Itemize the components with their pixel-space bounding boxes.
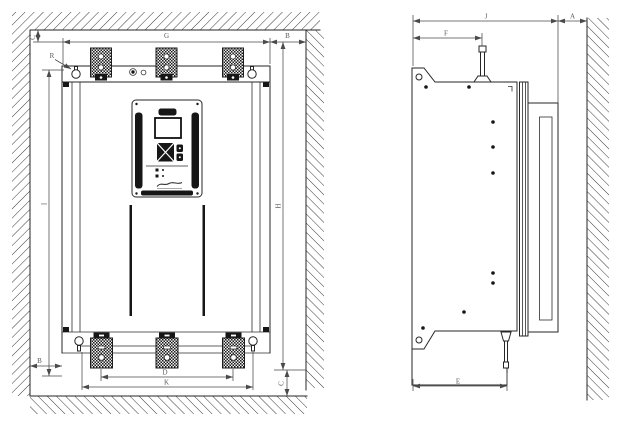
keypad-screw [135, 192, 137, 194]
status-led [162, 175, 164, 177]
keypad-screw [196, 103, 198, 105]
side-mounting-hole [416, 74, 422, 80]
dim-label-bottom-clearance: C [278, 381, 286, 386]
dim-label-front-clearance: A [570, 13, 575, 21]
dim-label-top-clearance: C [29, 35, 37, 40]
dim-label-top-depth: F [444, 30, 448, 38]
corner-nub [63, 82, 69, 87]
dim-label-overall-depth: J [485, 13, 488, 21]
wall-hatch-right [306, 30, 324, 388]
dim-label-terminal-pitch-inner: D [162, 369, 167, 377]
status-led [156, 175, 159, 178]
wall-hatch-left [12, 12, 30, 396]
corner-nub [263, 327, 269, 332]
dim-label-overall-height: H [275, 203, 283, 208]
keypad-side-rail [192, 113, 200, 189]
terminal-block-top [223, 48, 244, 81]
keypad-top-bar [159, 109, 177, 116]
terminal-block-top [156, 48, 177, 81]
terminal-block-bottom [156, 333, 178, 369]
dim-label-left-clearance: B [37, 357, 42, 365]
dim-label-mounting-width: G [164, 32, 169, 40]
wall-hatch-side [587, 18, 609, 400]
keypad-side-rail [135, 113, 143, 189]
terminal-block-top [91, 48, 112, 81]
keypad-bottom-bar [141, 191, 193, 196]
terminal-block-bottom [223, 333, 245, 369]
dim-label-mounting-slot: R [50, 52, 55, 60]
dim-label-terminal-pitch-outer: K [164, 379, 169, 387]
status-led [156, 169, 159, 172]
corner-nub [263, 82, 269, 87]
dim-label-base-depth: E [456, 378, 460, 386]
vent-slot [130, 205, 133, 316]
keypad-screw [196, 192, 198, 194]
corner-nub [63, 327, 69, 332]
side-wall-hatching [587, 18, 609, 400]
keypad-button-dot [179, 147, 181, 149]
keypad-button-dot [179, 156, 181, 158]
rail-indicator [141, 70, 146, 75]
wall-hatch-top [30, 12, 320, 30]
terminal-block-bottom [91, 333, 113, 369]
installation-drawing: C G B R I H B D K C [0, 0, 641, 427]
status-led [162, 169, 164, 171]
keypad-screw [135, 103, 137, 105]
vent-slot [203, 205, 206, 316]
nav-keypad [157, 143, 174, 162]
installation-drawing-page: C G B R I H B D K C [0, 0, 641, 427]
lcd-screen [155, 118, 181, 138]
dim-label-right-clearance: B [285, 32, 290, 40]
rail-indicator-center [131, 70, 134, 73]
side-mounting-hole [416, 337, 422, 343]
wall-hatch-bottom [30, 396, 307, 414]
